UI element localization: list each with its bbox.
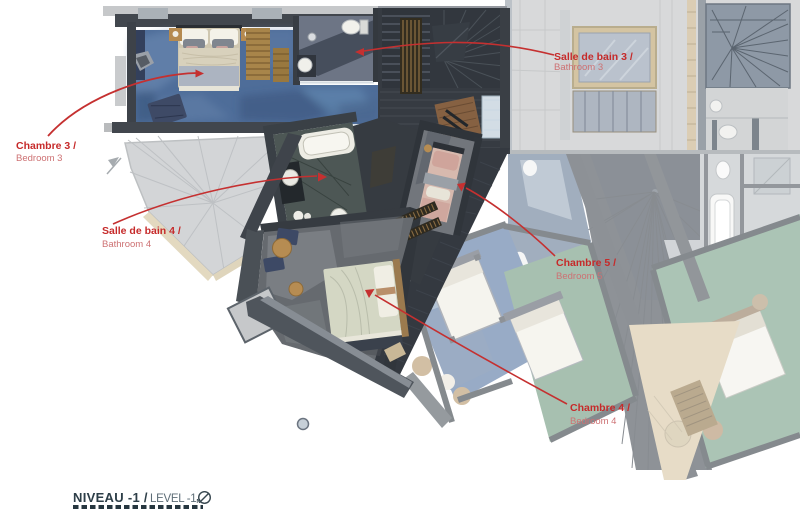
svg-text:Salle de bain 4 /: Salle de bain 4 / bbox=[102, 225, 181, 237]
svg-text:NIVEAU -1 /: NIVEAU -1 / bbox=[73, 490, 148, 505]
svg-text:Chambre 5 /: Chambre 5 / bbox=[556, 257, 616, 269]
svg-text:Bedroom 3: Bedroom 3 bbox=[16, 153, 62, 164]
svg-text:Bathroom 3: Bathroom 3 bbox=[554, 62, 603, 73]
svg-text:Bathroom 4: Bathroom 4 bbox=[102, 239, 151, 250]
svg-text:Bedroom 5: Bedroom 5 bbox=[556, 271, 602, 282]
svg-text:Bedroom 4: Bedroom 4 bbox=[570, 416, 616, 427]
svg-text:Chambre 3 /: Chambre 3 / bbox=[16, 140, 76, 152]
svg-text:LEVEL -1: LEVEL -1 bbox=[150, 493, 196, 505]
svg-text:Chambre 4 /: Chambre 4 / bbox=[570, 402, 630, 414]
